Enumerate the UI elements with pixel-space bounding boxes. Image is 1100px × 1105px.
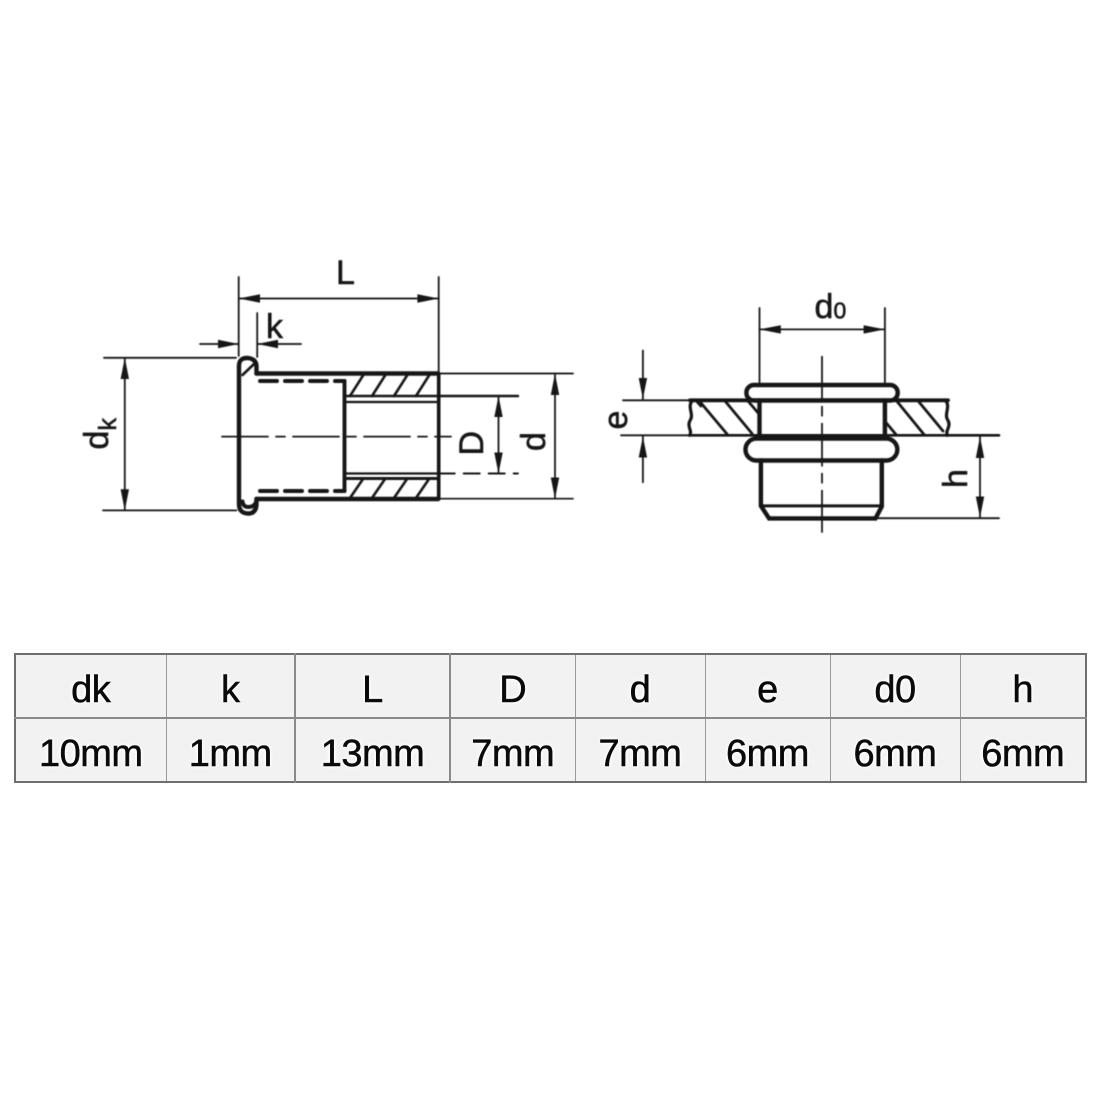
svg-text:e: e xyxy=(597,411,635,430)
svg-text:d: d xyxy=(515,432,553,451)
svg-text:k: k xyxy=(266,308,284,346)
svg-text:d: d xyxy=(815,288,834,326)
svg-text:h: h xyxy=(937,469,975,488)
svg-text:k: k xyxy=(94,418,122,431)
svg-text:D: D xyxy=(453,431,491,456)
svg-text:0: 0 xyxy=(834,298,847,324)
svg-text:L: L xyxy=(336,254,355,292)
svg-text:d: d xyxy=(78,431,116,450)
